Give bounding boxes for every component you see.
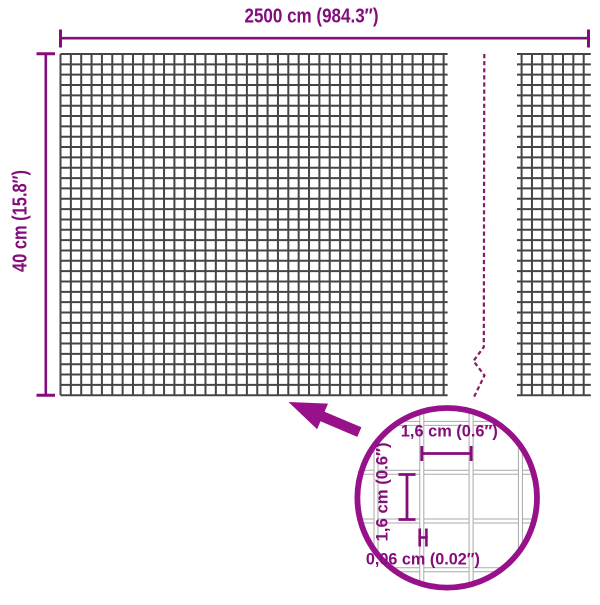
svg-text:0,06 cm (0.02″): 0,06 cm (0.02″) [366,550,480,569]
svg-text:1,6 cm (0.6″): 1,6 cm (0.6″) [401,422,498,441]
svg-text:1,6 cm (0.6″): 1,6 cm (0.6″) [373,442,392,541]
svg-text:2500 cm (984.3″): 2500 cm (984.3″) [245,6,379,28]
svg-text:40 cm (15.8″): 40 cm (15.8″) [10,170,32,272]
